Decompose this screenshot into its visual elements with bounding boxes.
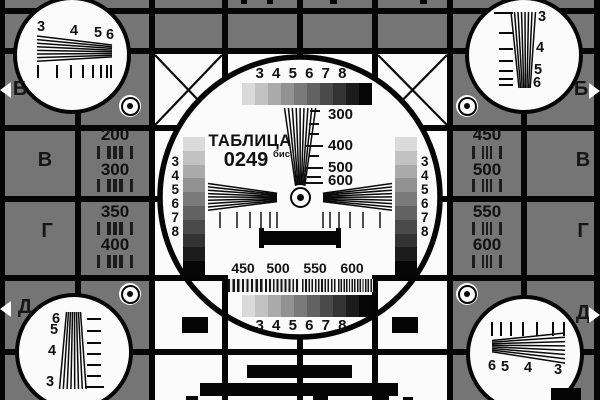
bottom-bar-long	[200, 383, 398, 396]
burst-label-450: 450	[226, 261, 260, 276]
grayscale-step	[395, 151, 417, 165]
grayscale-step	[333, 83, 346, 105]
freq-cell-number: 350	[85, 203, 145, 221]
grayscale-step	[183, 247, 205, 261]
grayscale-step	[307, 83, 320, 105]
grayscale-step	[333, 295, 346, 317]
grayscale-step	[242, 83, 255, 105]
ueit-test-card: ТАБЛИЦА 0249 бис 3 4 5 6 7 8 3 4 5 6 7 8…	[0, 0, 600, 400]
grayscale-step	[395, 220, 417, 234]
grayscale-wedge-left	[183, 137, 205, 275]
wedge-label-right: 8	[421, 225, 436, 239]
grayscale-step	[395, 234, 417, 248]
cropped-glyph-tip	[378, 396, 389, 400]
grayscale-step	[183, 206, 205, 220]
row-letter-left-b: Б	[9, 79, 31, 100]
corner-fan-label: 4	[67, 24, 81, 39]
grayscale-step	[359, 83, 372, 105]
grayscale-step	[294, 295, 307, 317]
reference-bar-horizontal	[263, 231, 337, 245]
freq-cell-number: 200	[85, 126, 145, 144]
burst-marks	[96, 179, 134, 192]
grayscale-step	[183, 234, 205, 248]
burst-marks	[468, 255, 506, 268]
burst-segment-450	[228, 279, 263, 292]
grayscale-wedge-top	[242, 83, 372, 105]
resolution-label-300: 300	[328, 107, 364, 123]
row-letter-left-d: Д	[12, 297, 38, 318]
grayscale-step	[307, 295, 320, 317]
row-letter-right-v: В	[572, 150, 594, 171]
freq-cell-number: 450	[457, 126, 517, 144]
card-title: ТАБЛИЦА	[203, 133, 297, 150]
grayscale-step	[183, 151, 205, 165]
burst-segment-600	[338, 279, 373, 292]
freq-cell-number: 500	[457, 161, 517, 179]
corner-fan-label: 4	[45, 344, 59, 359]
grayscale-labels-top: 3 4 5 6 7 8	[247, 66, 355, 82]
card-code-suffix: бис	[273, 150, 293, 160]
grayscale-step	[346, 83, 359, 105]
bullseye-mark	[119, 283, 141, 305]
grayscale-step	[395, 137, 417, 151]
grayscale-step	[320, 83, 333, 105]
grayscale-wedge-right	[395, 137, 417, 275]
grayscale-step	[395, 206, 417, 220]
row-marker-arrow	[589, 83, 600, 99]
burst-segment-500	[265, 279, 300, 292]
grayscale-step	[183, 220, 205, 234]
grayscale-step	[395, 178, 417, 192]
burst-marks	[96, 255, 134, 268]
reference-bar-cap	[259, 228, 264, 248]
grayscale-step	[242, 295, 255, 317]
corner-fan-label: 4	[533, 41, 547, 56]
grayscale-step	[359, 295, 372, 317]
row-letter-right-g: Г	[572, 221, 594, 242]
grayscale-step	[320, 295, 333, 317]
burst-label-600: 600	[335, 261, 369, 276]
burst-segment-550	[302, 279, 337, 292]
grayscale-step	[395, 261, 417, 275]
row-letter-left-g: Г	[36, 221, 58, 242]
grayscale-step	[268, 295, 281, 317]
grayscale-step	[294, 83, 307, 105]
black-square-right	[392, 317, 418, 333]
freq-cell-number: 300	[85, 161, 145, 179]
cropped-bar-bottom-right	[551, 388, 581, 400]
grayscale-step	[281, 295, 294, 317]
grayscale-step	[183, 165, 205, 179]
row-letter-left-v: В	[34, 150, 56, 171]
grayscale-step	[183, 178, 205, 192]
bullseye-mark	[456, 95, 478, 117]
corner-fan-label: 5	[498, 360, 512, 375]
row-marker-arrow	[0, 301, 11, 317]
row-marker-arrow	[589, 307, 600, 323]
corner-fan-label: 5	[47, 323, 61, 338]
grayscale-step	[395, 192, 417, 206]
grayscale-wedge-bottom	[242, 295, 372, 317]
black-square-left	[182, 317, 208, 333]
corner-fan-label: 6	[485, 359, 499, 374]
freq-cell-number: 550	[457, 203, 517, 221]
bullseye-mark	[119, 95, 141, 117]
corner-fan-label: 3	[34, 20, 48, 35]
burst-marks	[96, 222, 134, 235]
grayscale-step	[268, 83, 281, 105]
cropped-glyph-tip	[313, 396, 328, 400]
corner-circle-top-right	[467, 0, 581, 112]
grayscale-step	[183, 192, 205, 206]
grayscale-step	[255, 83, 268, 105]
wedge-label-left: 8	[164, 225, 179, 239]
grayscale-step	[255, 295, 268, 317]
corner-fan-label: 3	[535, 10, 549, 25]
bullseye-mark	[456, 283, 478, 305]
burst-marks	[468, 146, 506, 159]
resolution-label-600: 600	[328, 173, 364, 189]
bottom-bar-short	[247, 365, 352, 378]
grayscale-step	[183, 137, 205, 151]
bullseye-center	[288, 185, 312, 209]
burst-label-550: 550	[298, 261, 332, 276]
freq-cell-number: 600	[457, 236, 517, 254]
grayscale-step	[346, 295, 359, 317]
resolution-label-400: 400	[328, 138, 364, 154]
corner-fan-label: 3	[43, 375, 57, 390]
grayscale-step	[183, 261, 205, 275]
cropped-glyph-tip	[186, 396, 198, 400]
grayscale-step	[281, 83, 294, 105]
burst-marks	[468, 179, 506, 192]
card-code: 0249	[217, 150, 275, 171]
corner-fan-label: 3	[551, 363, 565, 378]
reference-bar-cap	[336, 228, 341, 248]
grayscale-step	[395, 247, 417, 261]
corner-fan-label: 6	[530, 76, 544, 91]
burst-marks	[468, 222, 506, 235]
grayscale-step	[395, 165, 417, 179]
burst-strip	[228, 279, 373, 292]
grayscale-labels-bottom: 3 4 5 6 7 8	[247, 318, 355, 334]
corner-fan-label: 4	[521, 361, 535, 376]
freq-cell-number: 400	[85, 236, 145, 254]
burst-marks	[96, 146, 134, 159]
burst-label-500: 500	[261, 261, 295, 276]
corner-fan-label: 6	[103, 28, 117, 43]
